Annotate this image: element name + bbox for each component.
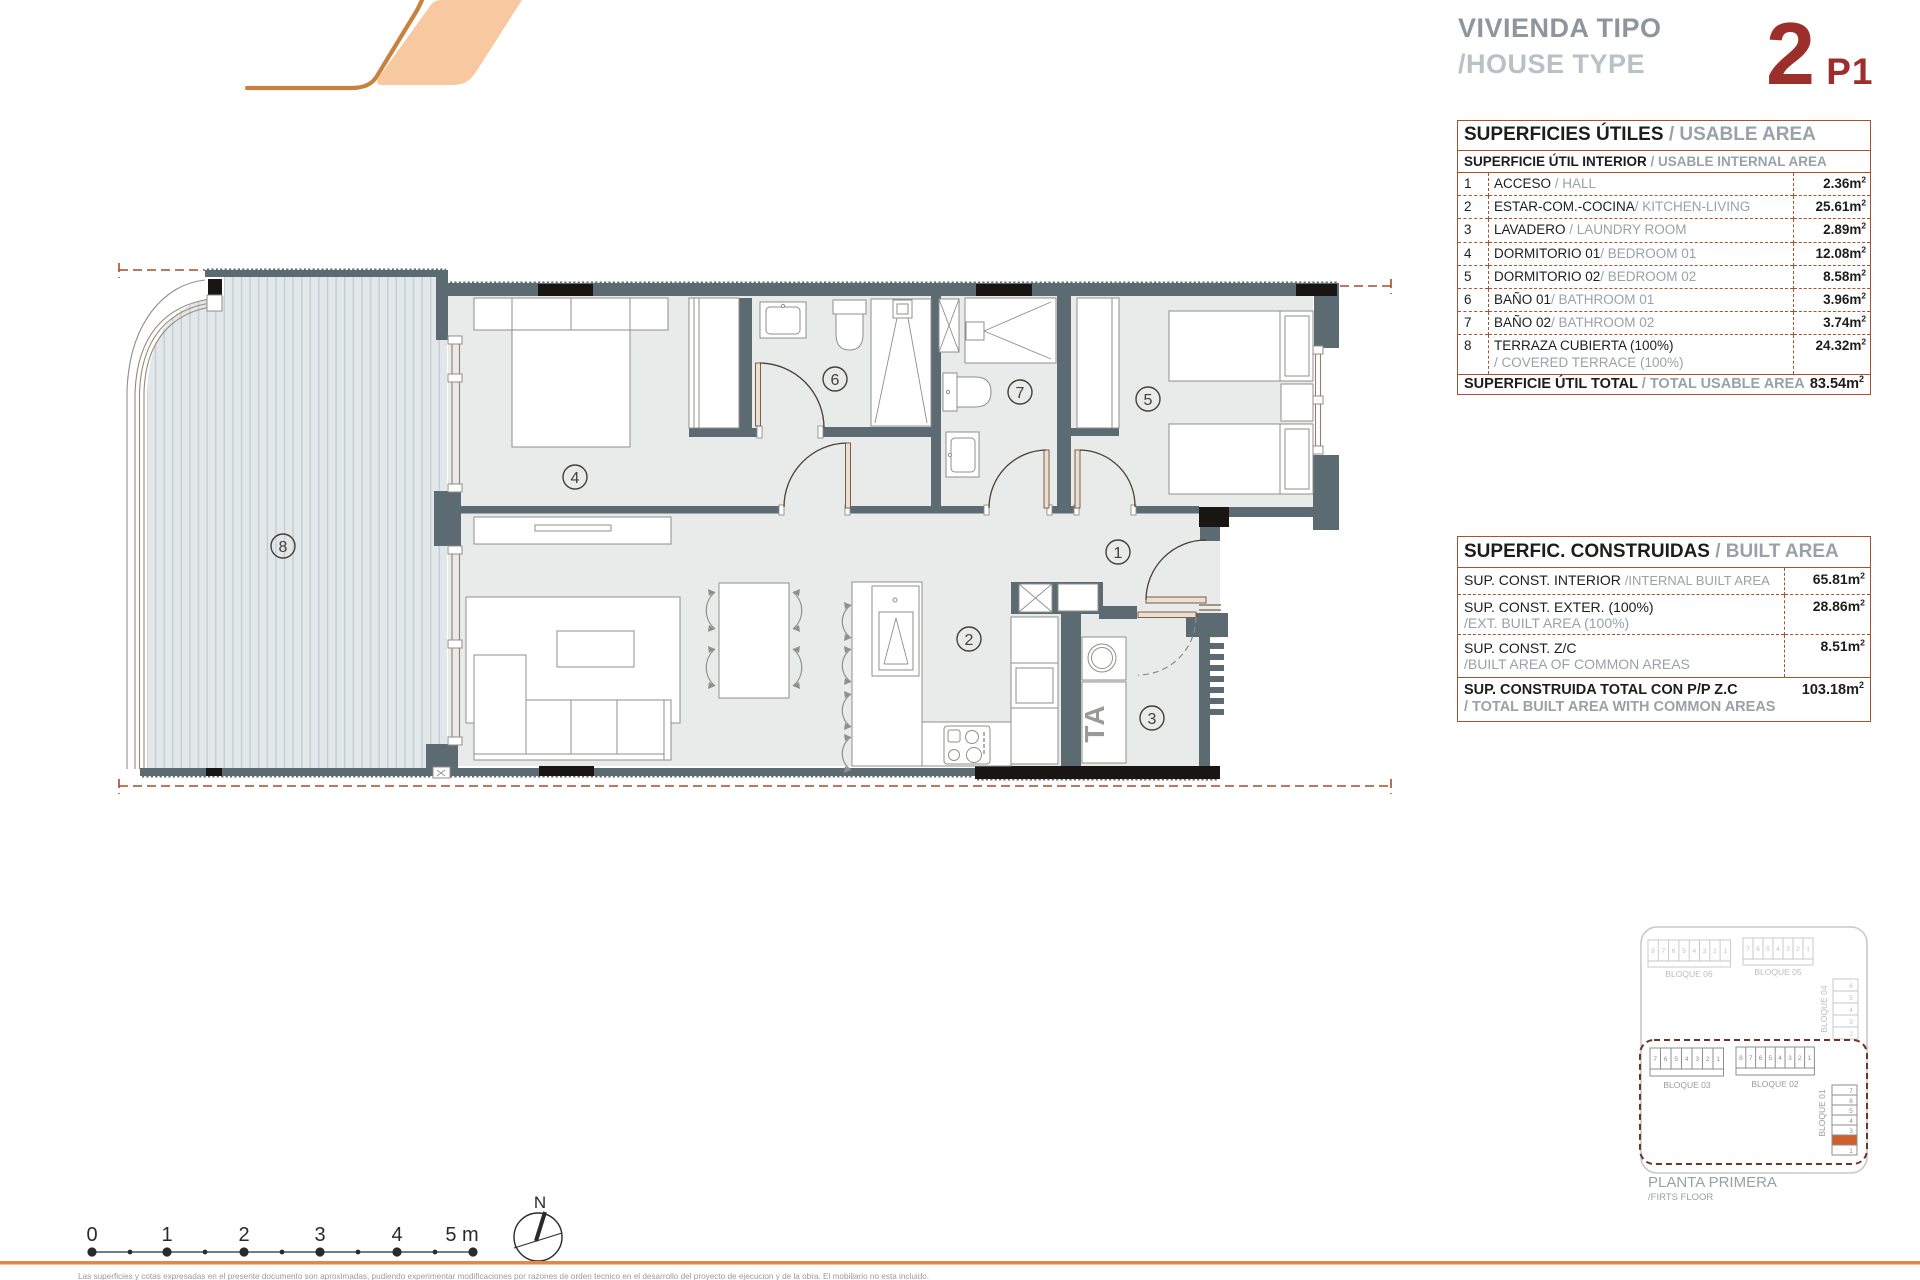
svg-text:7: 7 <box>1849 1088 1853 1095</box>
svg-text:3: 3 <box>1695 1056 1699 1063</box>
svg-text:6: 6 <box>831 372 840 389</box>
svg-text:5: 5 <box>1674 1056 1678 1063</box>
svg-text:3: 3 <box>1849 1019 1853 1026</box>
svg-text:3: 3 <box>1703 948 1707 955</box>
svg-text:2: 2 <box>1796 946 1800 953</box>
svg-text:PLANTA PRIMERA: PLANTA PRIMERA <box>1648 1174 1777 1191</box>
svg-text:3: 3 <box>1148 711 1157 728</box>
svg-text:1: 1 <box>1806 946 1810 953</box>
svg-text:8: 8 <box>279 539 288 556</box>
svg-text:4: 4 <box>1778 1055 1782 1062</box>
svg-text:BLOQUE 02: BLOQUE 02 <box>1751 1079 1799 1089</box>
svg-text:1: 1 <box>1723 948 1727 955</box>
svg-text:5: 5 <box>1682 948 1686 955</box>
svg-text:BLOQUE 06: BLOQUE 06 <box>1665 969 1713 979</box>
svg-text:6: 6 <box>1664 1056 1668 1063</box>
svg-text:5: 5 <box>1144 392 1153 409</box>
svg-text:4: 4 <box>1776 946 1780 953</box>
svg-text:1: 1 <box>1716 1056 1720 1063</box>
svg-text:/FIRTS FLOOR: /FIRTS FLOOR <box>1648 1192 1713 1203</box>
svg-text:2: 2 <box>1798 1055 1802 1062</box>
svg-text:3: 3 <box>1849 1128 1853 1135</box>
svg-text:6: 6 <box>1756 946 1760 953</box>
svg-text:N: N <box>534 1193 546 1212</box>
svg-text:4: 4 <box>1849 1118 1853 1125</box>
svg-text:7: 7 <box>1016 385 1025 402</box>
svg-text:5 m: 5 m <box>445 1224 478 1246</box>
svg-text:8: 8 <box>1651 948 1655 955</box>
svg-text:0: 0 <box>86 1224 97 1246</box>
svg-text:Las superficies y cotas expres: Las superficies y cotas expresadas en el… <box>78 1272 929 1280</box>
svg-text:2: 2 <box>238 1224 249 1246</box>
svg-text:BLOQUE 03: BLOQUE 03 <box>1663 1080 1711 1090</box>
svg-text:3: 3 <box>314 1224 325 1246</box>
svg-text:7: 7 <box>1749 1055 1753 1062</box>
svg-text:6: 6 <box>1849 1098 1853 1105</box>
svg-text:TA: TA <box>1079 703 1110 742</box>
svg-text:BLOQUE 05: BLOQUE 05 <box>1754 967 1802 977</box>
svg-text:1: 1 <box>161 1224 172 1246</box>
svg-text:1: 1 <box>1849 1148 1853 1155</box>
svg-text:7: 7 <box>1653 1056 1657 1063</box>
svg-text:8: 8 <box>1739 1055 1743 1062</box>
svg-text:BLOQUE 01: BLOQUE 01 <box>1817 1089 1827 1137</box>
svg-text:2: 2 <box>1706 1056 1710 1063</box>
svg-text:4: 4 <box>1849 1007 1853 1014</box>
svg-text:4: 4 <box>571 470 580 487</box>
svg-text:6: 6 <box>1672 948 1676 955</box>
svg-text:1: 1 <box>1114 545 1123 562</box>
svg-text:7: 7 <box>1662 948 1666 955</box>
svg-text:7: 7 <box>1746 946 1750 953</box>
svg-text:2: 2 <box>1713 948 1717 955</box>
svg-text:2: 2 <box>1849 1031 1853 1038</box>
svg-text:3: 3 <box>1788 1055 1792 1062</box>
svg-text:6: 6 <box>1759 1055 1763 1062</box>
svg-text:3: 3 <box>1786 946 1790 953</box>
svg-text:2: 2 <box>965 632 974 649</box>
svg-text:4: 4 <box>391 1224 402 1246</box>
svg-text:4: 4 <box>1692 948 1696 955</box>
svg-text:5: 5 <box>1768 1055 1772 1062</box>
svg-text:BLOQUE 04: BLOQUE 04 <box>1819 985 1829 1033</box>
svg-text:4: 4 <box>1685 1056 1689 1063</box>
svg-text:6: 6 <box>1849 983 1853 990</box>
svg-text:5: 5 <box>1849 1108 1853 1115</box>
svg-text:5: 5 <box>1766 946 1770 953</box>
svg-text:5: 5 <box>1849 995 1853 1002</box>
svg-text:1: 1 <box>1808 1055 1812 1062</box>
